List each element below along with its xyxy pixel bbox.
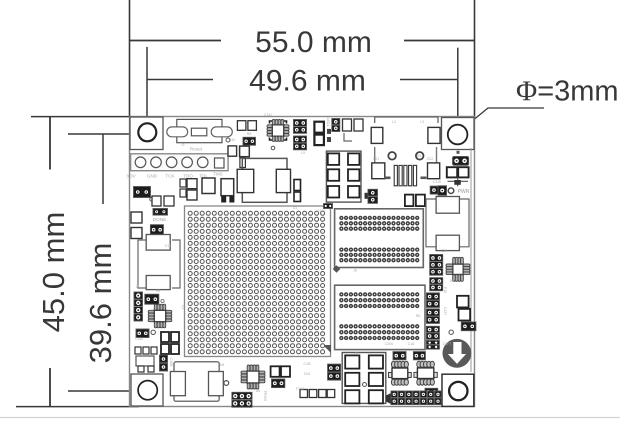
svg-text:R6: R6 xyxy=(156,289,161,293)
svg-text:C1F7: C1F7 xyxy=(443,342,452,346)
svg-text:LED1: LED1 xyxy=(326,118,330,127)
svg-text:Φ=3mm: Φ=3mm xyxy=(516,76,619,108)
svg-text:45.0 mm: 45.0 mm xyxy=(36,212,71,333)
svg-text:39.6 mm: 39.6 mm xyxy=(83,243,118,364)
svg-text:L2: L2 xyxy=(392,120,396,124)
svg-text:C200: C200 xyxy=(385,342,394,346)
svg-text:J5: J5 xyxy=(354,351,358,355)
svg-text:TCK: TCK xyxy=(165,174,175,179)
svg-text:C106: C106 xyxy=(317,209,326,213)
svg-text:U1: U1 xyxy=(293,206,298,210)
svg-text:C21: C21 xyxy=(373,157,380,161)
svg-text:C10B: C10B xyxy=(169,358,173,368)
svg-text:C22: C22 xyxy=(427,157,434,161)
svg-text:C141: C141 xyxy=(264,113,273,117)
svg-text:PROG: PROG xyxy=(263,391,267,402)
svg-text:C137: C137 xyxy=(443,307,447,316)
svg-text:U8: U8 xyxy=(220,363,225,367)
svg-text:GND: GND xyxy=(147,174,158,179)
svg-text:55.0 mm: 55.0 mm xyxy=(255,26,372,59)
svg-text:L5: L5 xyxy=(301,151,305,155)
svg-text:TMS: TMS xyxy=(213,172,223,177)
svg-text:DONE: DONE xyxy=(153,217,167,222)
svg-text:C16: C16 xyxy=(165,244,172,248)
svg-text:S1: S1 xyxy=(181,305,185,309)
svg-text:C28: C28 xyxy=(441,249,448,253)
svg-text:C1W: C1W xyxy=(433,180,442,184)
svg-text:P10: P10 xyxy=(443,287,447,293)
svg-text:49.6 mm: 49.6 mm xyxy=(249,65,366,98)
svg-text:Reset: Reset xyxy=(190,146,203,152)
svg-text:R8: R8 xyxy=(247,132,252,136)
svg-text:C18: C18 xyxy=(408,342,415,346)
svg-text:PWR: PWR xyxy=(458,189,470,195)
svg-text:R6: R6 xyxy=(416,314,421,318)
svg-text:C30: C30 xyxy=(229,138,236,142)
svg-text:J6: J6 xyxy=(353,269,357,273)
svg-text:C04: C04 xyxy=(304,372,311,376)
svg-text:T1: T1 xyxy=(135,284,139,288)
svg-text:F102: F102 xyxy=(296,387,304,391)
svg-text:C1B: C1B xyxy=(304,362,312,366)
svg-text:3.3V: 3.3V xyxy=(126,174,136,179)
svg-text:L3: L3 xyxy=(420,120,424,124)
svg-text:U7: U7 xyxy=(450,279,455,283)
svg-text:R9: R9 xyxy=(417,154,422,158)
svg-text:J1: J1 xyxy=(181,143,185,147)
svg-text:TDO: TDO xyxy=(183,174,193,179)
svg-text:C150: C150 xyxy=(135,337,144,341)
svg-text:U6: U6 xyxy=(256,389,261,393)
